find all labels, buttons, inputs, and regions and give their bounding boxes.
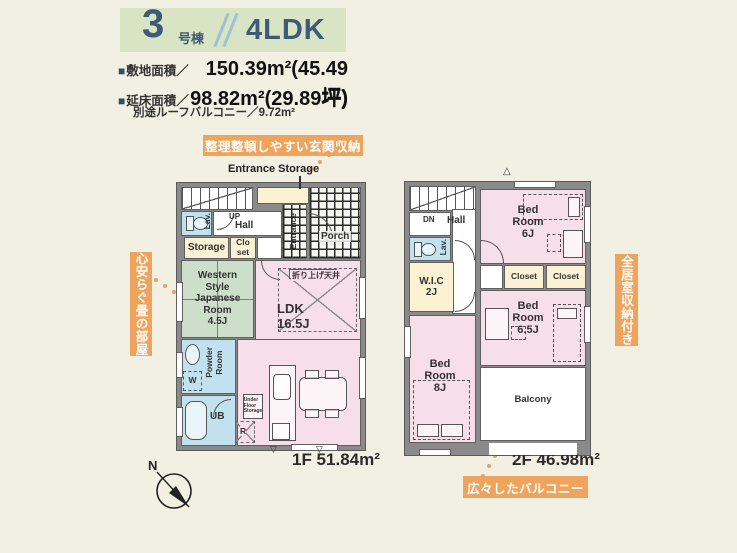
closet-access <box>481 266 502 288</box>
washer-label: W <box>188 376 196 386</box>
chair-icon <box>305 409 319 418</box>
room-stairs-2f <box>410 187 475 210</box>
chair-icon <box>325 370 339 379</box>
pillow-icon <box>441 424 463 437</box>
trail-dot <box>327 153 331 157</box>
storage-label: Storage <box>188 242 225 254</box>
leader-line <box>299 176 301 189</box>
trail-dot <box>172 290 176 294</box>
raised-ceiling-label: 折り上げ天井 <box>291 270 341 281</box>
hall-label-2f: Hall <box>447 215 465 226</box>
title-box: 3 号棟 4LDK <box>120 8 346 52</box>
pillow-icon <box>557 308 577 319</box>
toilet-icon <box>421 243 436 256</box>
closet-b-label: Closet <box>553 272 579 282</box>
room-wic: W.I.C 2J <box>410 263 453 311</box>
pillow-icon <box>568 197 580 217</box>
chair-icon <box>325 409 339 418</box>
chair-icon <box>305 370 319 379</box>
balcony-opening <box>489 443 577 455</box>
entrance-label: Entrance <box>288 213 298 249</box>
dining-table-icon <box>299 377 347 411</box>
floor1-area: 1F 51.84m² <box>292 450 380 470</box>
window <box>585 307 590 342</box>
tag-all-rooms-storage: 全居室収納付き <box>615 254 638 346</box>
window <box>515 182 555 187</box>
porch-label: Porch <box>319 231 351 242</box>
washer-icon: W <box>183 371 202 391</box>
ldk-label: LDK 16.5J <box>277 301 310 331</box>
window <box>177 353 182 377</box>
trail-dot <box>487 464 491 468</box>
fridge-label: R <box>240 426 246 436</box>
pillow-icon <box>417 424 439 437</box>
powder-label: Powder Room <box>204 347 224 378</box>
floorplan-flyer: 3 号棟 4LDK ■ 敷地面積／ 150.39m²(45.49坪) ■ 延床面… <box>0 0 737 553</box>
japanese-room-label: Western Style Japanese Room 4.5J <box>195 270 241 328</box>
stove-icon <box>272 423 290 440</box>
vent-marker: ▽ <box>316 444 323 455</box>
room-closet-b: Closet <box>547 266 585 288</box>
room-entrance-storage <box>258 188 308 203</box>
roof-balcony-note: 別途ルーフバルコニー／9.72m² <box>133 104 295 120</box>
wic-label: W.I.C 2J <box>419 276 443 299</box>
tag-balcony: 広々したバルコニー <box>463 476 588 498</box>
dn-label: DN <box>423 215 435 224</box>
closet-a-label: Closet <box>511 272 537 282</box>
room-stairs-1f <box>182 188 252 209</box>
under-floor-storage-label: Under Floor Storage <box>244 398 263 415</box>
bathtub-icon <box>185 401 207 440</box>
compass-north-label: N <box>148 458 157 473</box>
closet-label: Clo set <box>236 238 250 258</box>
unit-suffix: 号棟 <box>178 28 204 47</box>
desk-icon <box>563 230 583 258</box>
lav-label-1f: Lav. <box>202 213 212 229</box>
bullet-icon: ■ <box>118 94 125 108</box>
bullet-icon: ■ <box>118 64 125 78</box>
window <box>292 445 337 450</box>
trail-dot <box>481 474 485 478</box>
trail-dot <box>336 146 340 150</box>
sink-icon <box>273 374 291 400</box>
window <box>177 408 182 436</box>
trail-dot <box>163 284 167 288</box>
window <box>585 207 590 242</box>
room-closet-1f: Clo set <box>231 238 255 258</box>
bed65-label: Bed Room 6.5J <box>505 300 551 336</box>
balcony-label: Balcony <box>500 394 566 405</box>
basin-icon <box>185 344 200 365</box>
bed8-label: Bed Room 8J <box>417 358 463 394</box>
plan-type: 4LDK <box>246 14 326 47</box>
compass: N <box>146 460 198 516</box>
hall-label-1f: Hall <box>235 220 253 231</box>
window <box>405 327 410 357</box>
bed6-label: Bed Room 6J <box>505 204 551 240</box>
window <box>177 283 182 321</box>
lav-label-2f: Lav. <box>438 239 448 255</box>
window <box>420 450 450 455</box>
entrance-storage-caption: Entrance Storage <box>228 163 319 175</box>
ub-label: UB <box>210 411 224 422</box>
floorplan-2f: W.I.C 2J Closet Closet DN Hall Lav. Bed … <box>405 182 590 455</box>
flag-marker: △ <box>503 166 511 177</box>
under-floor-storage-icon: Under Floor Storage <box>243 394 263 419</box>
window <box>360 358 365 398</box>
trail-dot <box>154 278 158 282</box>
floorplan-1f: Storage Clo set Western Style Japanese R… <box>177 183 365 450</box>
tag-tatami-room: 心安らぐ畳の部屋 <box>130 252 152 356</box>
window <box>360 278 365 318</box>
room-storage-1f: Storage <box>185 238 228 258</box>
room-hall-1f-lower <box>258 238 281 258</box>
site-area-label: 敷地面積／ <box>126 60 189 79</box>
room-closet-a: Closet <box>505 266 543 288</box>
vent-marker: ▽ <box>270 444 277 455</box>
unit-number: 3 <box>142 2 164 47</box>
